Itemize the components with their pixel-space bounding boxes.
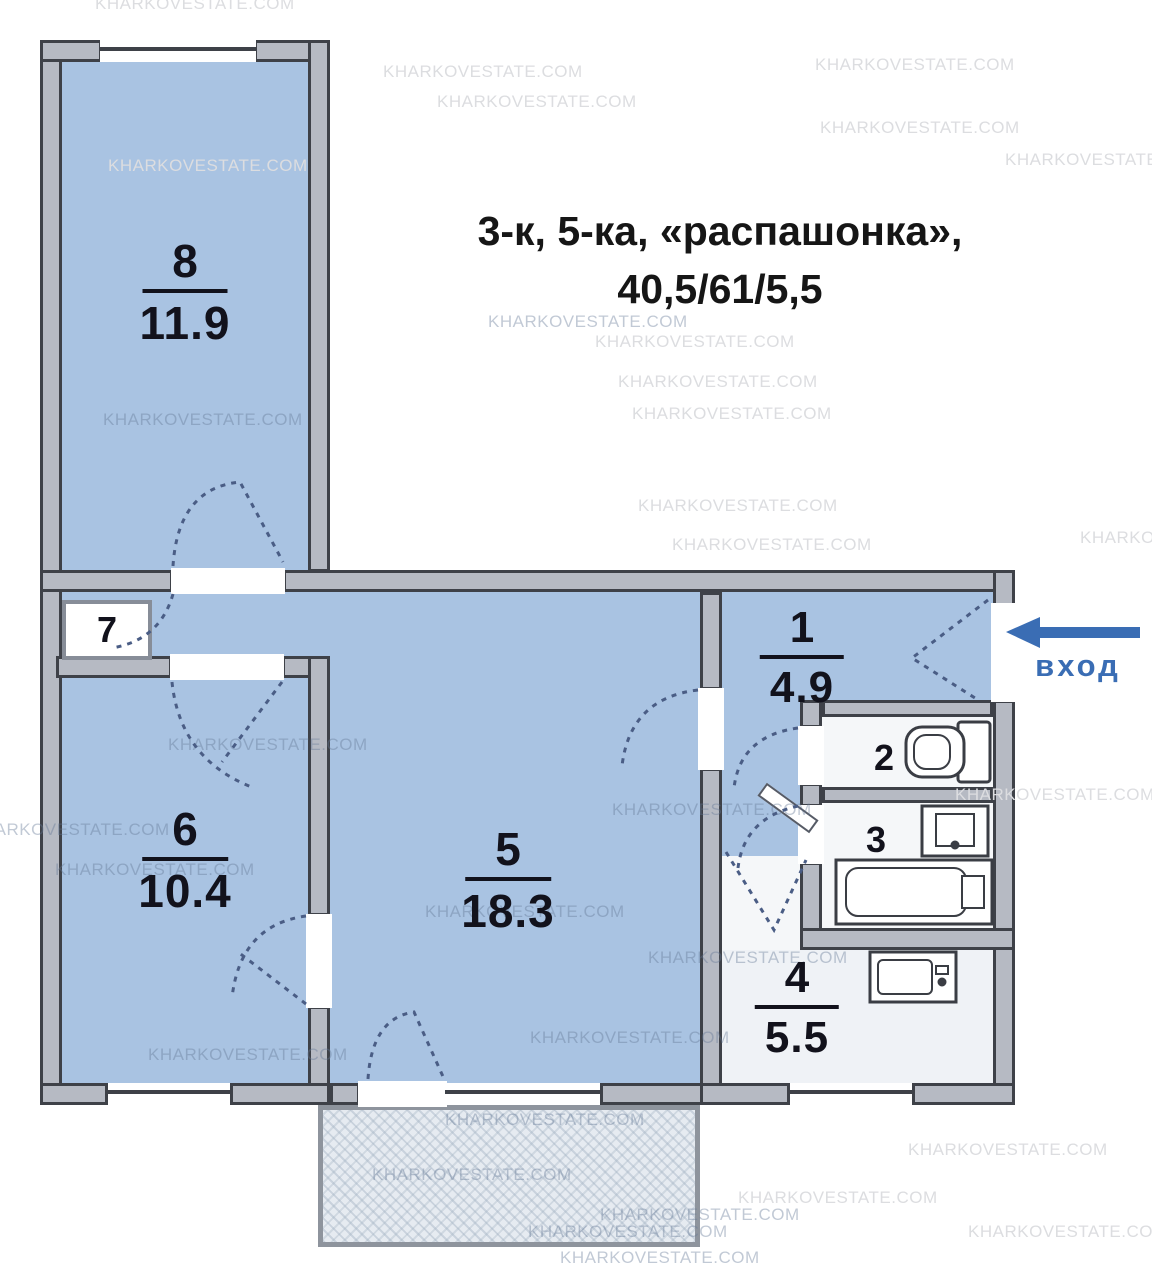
watermark: KHARKOVESTATE.COM: [103, 410, 303, 430]
room-5-label: 5 18.3: [461, 826, 555, 934]
watermark: KHARKOVESTATE.COM: [815, 55, 1015, 75]
wall: [800, 928, 1015, 950]
watermark: KHARKOVESTATE.COM: [955, 785, 1152, 805]
watermark: KHARKOVESTATE.COM: [632, 404, 832, 424]
watermark: KHARKOVESTATE.COM: [612, 800, 812, 820]
entrance-arrow-icon: [1006, 617, 1140, 648]
wall: [40, 40, 102, 62]
door-opening: [171, 568, 285, 594]
room-1-number: 1: [760, 606, 844, 659]
corridor-interior: [722, 700, 800, 858]
watermark: KHARKOVESTATE.COM: [1080, 528, 1152, 548]
watermark: KHARKOVESTATE.COM: [437, 92, 637, 112]
wall: [40, 570, 173, 592]
door-opening: [991, 603, 1017, 702]
room-4-label: 4 5.5: [755, 956, 839, 1060]
door-opening: [170, 654, 284, 680]
room-7-box: 7: [62, 600, 152, 660]
watermark: KHARKOVESTATE.COM: [528, 1222, 728, 1242]
wall: [912, 1083, 1015, 1105]
wall: [700, 1083, 790, 1105]
room-6-number: 6: [142, 806, 228, 861]
room-5-area: 18.3: [461, 881, 555, 934]
watermark: KHARKOVESTATE.COM: [383, 62, 583, 82]
window: [108, 1083, 230, 1105]
wall: [308, 40, 330, 572]
door-opening: [306, 914, 332, 1008]
room-5-number: 5: [465, 826, 551, 881]
wall: [308, 656, 330, 916]
watermark: KHARKOVESTATE.COM: [968, 1222, 1152, 1242]
room-8-area: 11.9: [140, 293, 231, 346]
watermark: KHARKOVESTATE.COM: [820, 118, 1020, 138]
window-glass-line: [108, 1090, 230, 1094]
window-glass-line: [445, 1090, 600, 1094]
watermark: KHARKOVESTATE.COM: [908, 1140, 1108, 1160]
watermark: KHARKOVESTATE.COM: [738, 1188, 938, 1208]
room-3-label: 3: [866, 819, 886, 861]
room-4-number: 4: [755, 956, 839, 1009]
room-7-label: 7: [97, 609, 117, 651]
window-glass-line: [100, 47, 256, 51]
wall: [700, 592, 722, 690]
window: [790, 1083, 912, 1105]
floor-plan-canvas: 7 3-к, 5-ка, «распашонка», 40,5/61/5,5 8…: [0, 0, 1152, 1280]
watermark: KHARKOVESTATE.COM: [108, 156, 308, 176]
door-opening: [698, 688, 724, 770]
wall: [993, 700, 1015, 1105]
room-1-area: 4.9: [770, 659, 834, 710]
room-2-label: 2: [874, 737, 894, 779]
window-glass-line: [790, 1090, 912, 1094]
room-4-area: 5.5: [765, 1009, 829, 1060]
watermark: KHARKOVESTATE.COM: [1005, 150, 1152, 170]
door-opening: [798, 726, 824, 785]
watermark: KHARKOVESTATE.COM: [372, 1165, 572, 1185]
watermark: KHARKOVESTATE.COM: [95, 0, 295, 14]
wall: [40, 1083, 108, 1105]
watermark: KHARKOVESTATE.COM: [638, 496, 838, 516]
plan-title: 3-к, 5-ка, «распашонка», 40,5/61/5,5: [428, 202, 1012, 318]
watermark: KHARKOVESTATE.COM: [445, 1110, 645, 1130]
room-3-interior: [822, 803, 993, 928]
watermark: KHARKOVESTATE.COM: [560, 1248, 760, 1268]
room-6-area: 10.4: [138, 861, 232, 914]
window: [100, 40, 256, 62]
entrance-label: вход: [1035, 648, 1121, 684]
watermark: KHARKOVESTATE.COM: [530, 1028, 730, 1048]
window: [445, 1083, 600, 1105]
wall: [283, 570, 1015, 592]
wall: [822, 700, 993, 717]
room-1-label: 1 4.9: [760, 606, 844, 710]
wall: [230, 1083, 330, 1105]
room-6-label: 6 10.4: [138, 806, 232, 914]
wall: [993, 570, 1015, 607]
watermark: KHARKOVESTATE.COM: [618, 372, 818, 392]
watermark: KHARKOVESTATE.COM: [672, 535, 872, 555]
room-2-interior: [822, 717, 993, 787]
door-opening: [358, 1081, 447, 1107]
room-8-label: 8 11.9: [140, 238, 231, 346]
plan-title-line1: 3-к, 5-ка, «распашонка»,: [428, 202, 1012, 260]
watermark: KHARKOVESTATE.COM: [148, 1045, 348, 1065]
watermark: KHARKOVESTATE.COM: [595, 332, 795, 352]
watermark: KHARKOVESTATE.COM: [168, 735, 368, 755]
plan-title-line2: 40,5/61/5,5: [428, 260, 1012, 318]
room-8-number: 8: [142, 238, 228, 293]
wall: [330, 1083, 360, 1105]
